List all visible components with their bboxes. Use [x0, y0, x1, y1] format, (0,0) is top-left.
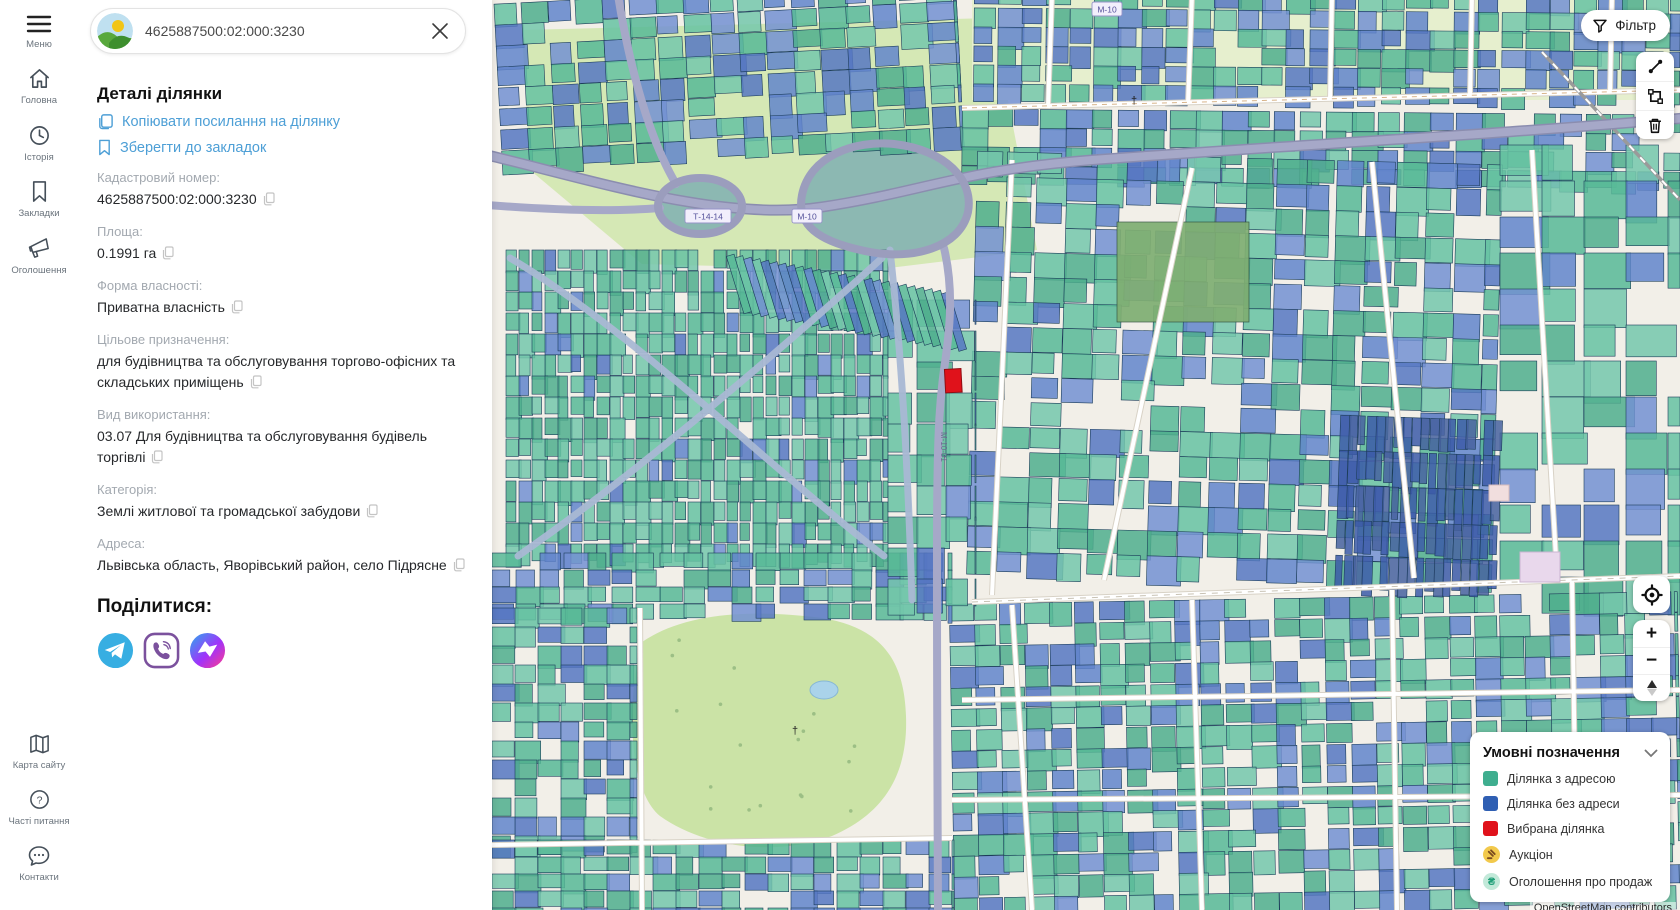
menu-button[interactable]: Меню	[3, 14, 75, 50]
copy-icon[interactable]	[250, 375, 262, 389]
sidebar-item-home[interactable]: Головна	[3, 67, 75, 106]
details-title: Деталі ділянки	[97, 84, 466, 104]
field-label: Площа:	[97, 224, 466, 239]
funnel-icon	[1592, 18, 1608, 34]
field-value: Львівська область, Яворівський район, се…	[97, 555, 466, 576]
blue-swatch	[1483, 796, 1498, 811]
app-root: Меню Головна Історія Закладки Оголо	[0, 0, 1680, 910]
park	[632, 614, 906, 848]
copy-icon[interactable]	[151, 450, 163, 464]
legend-title: Умовні позначення	[1483, 745, 1620, 761]
sidebar-item-bookmarks[interactable]: Закладки	[3, 180, 75, 219]
share-buttons	[97, 632, 466, 669]
svg-text:М-10: М-10	[797, 212, 817, 222]
field-use-type: Вид використання: 03.07 Для будівництва …	[97, 407, 466, 468]
app-logo	[97, 13, 133, 49]
rail-label: Історія	[24, 152, 53, 163]
field-address: Адреса: Львівська область, Яворівський р…	[97, 536, 466, 576]
copy-link-icon	[97, 113, 114, 130]
svg-text:Т-14-14: Т-14-14	[693, 212, 723, 222]
legend-item-sale: ₴ Оголошення про продаж	[1483, 873, 1658, 890]
messenger-icon[interactable]	[189, 632, 226, 669]
field-value: 03.07 Для будівництва та обслуговування …	[97, 426, 466, 468]
measure-area-button[interactable]	[1636, 81, 1674, 110]
zoom-out-button[interactable]: −	[1633, 647, 1670, 674]
map-attribution[interactable]: OpenStreetMap contributors	[1530, 902, 1676, 910]
bookmark-add-icon	[97, 139, 112, 156]
legend-item-selected: Вибрана ділянка	[1483, 821, 1658, 836]
map-toolbar	[1636, 52, 1674, 139]
megaphone-icon	[27, 237, 52, 260]
copy-link-label: Копіювати посилання на ділянку	[122, 114, 340, 130]
building	[1489, 485, 1509, 501]
road-label-m10-01: М-10-01	[939, 432, 948, 462]
question-icon: ?	[28, 788, 51, 811]
rail-label: Головна	[21, 95, 57, 106]
field-label: Кадастровий номер:	[97, 170, 466, 185]
field-label: Адреса:	[97, 536, 466, 551]
legend-label: Ділянка з адресою	[1507, 772, 1615, 786]
svg-text:М-10: М-10	[1097, 5, 1117, 15]
map-area: † † Т-14-14 М-10 М-10 М-10-01 Фільтр	[492, 0, 1680, 910]
bookmark-icon	[29, 180, 50, 203]
filter-label: Фільтр	[1615, 18, 1656, 33]
field-value: Землі житлової та громадської забудови	[97, 501, 466, 522]
svg-text:?: ?	[36, 795, 42, 807]
map-legend: Умовні позначення Ділянка з адресою Діля…	[1470, 732, 1670, 902]
road-shield-m10: М-10	[792, 209, 822, 223]
clear-measurements-button[interactable]	[1636, 110, 1674, 139]
hamburger-icon	[26, 14, 52, 34]
telegram-icon[interactable]	[97, 632, 134, 669]
copy-icon[interactable]	[231, 300, 243, 314]
chevron-down-icon	[1644, 749, 1658, 758]
legend-label: Ділянка без адреси	[1507, 797, 1620, 811]
sidebar-item-contacts[interactable]: Контакти	[3, 845, 75, 883]
sidebar-item-history[interactable]: Історія	[3, 124, 75, 163]
field-value: 4625887500:02:000:3230	[97, 189, 466, 210]
rectangle-select-icon	[1647, 88, 1664, 105]
field-category: Категорія: Землі житлової та громадської…	[97, 482, 466, 522]
parcel-details: Деталі ділянки Копіювати посилання на ді…	[90, 84, 466, 669]
clock-icon	[28, 124, 51, 147]
save-bookmark-action[interactable]: Зберегти до закладок	[97, 139, 466, 156]
search-input[interactable]	[145, 23, 429, 39]
measure-distance-button[interactable]	[1636, 52, 1674, 81]
rail-label: Контакти	[19, 872, 59, 883]
hryvnia-icon: ₴	[1483, 873, 1500, 890]
auction-gavel-icon	[1483, 846, 1500, 863]
compass-button[interactable]	[1633, 674, 1670, 701]
legend-label: Вибрана ділянка	[1507, 822, 1604, 836]
sidebar-item-faq[interactable]: ? Часті питання	[3, 788, 75, 827]
rail-label: Часті питання	[8, 816, 69, 827]
zoom-in-button[interactable]: +	[1633, 620, 1670, 647]
save-bookmark-label: Зберегти до закладок	[120, 140, 266, 156]
legend-header[interactable]: Умовні позначення	[1483, 745, 1658, 761]
pond	[810, 681, 838, 699]
map-icon	[28, 733, 51, 755]
rail-label: Оголошення	[11, 265, 66, 276]
legend-label: Оголошення про продаж	[1509, 875, 1652, 889]
viber-icon[interactable]	[143, 632, 180, 669]
road-shield-t1414: Т-14-14	[685, 209, 731, 223]
share-title: Поділитися:	[97, 596, 466, 618]
geolocate-icon	[1641, 584, 1663, 606]
field-label: Цільове призначення:	[97, 332, 466, 347]
field-label: Вид використання:	[97, 407, 466, 422]
legend-item-with-address: Ділянка з адресою	[1483, 771, 1658, 786]
details-panel: Деталі ділянки Копіювати посилання на ді…	[78, 0, 492, 910]
field-ownership: Форма власності: Приватна власність	[97, 278, 466, 318]
forest	[1117, 222, 1249, 322]
rail-label: Карта сайту	[13, 760, 66, 771]
close-icon[interactable]	[429, 20, 451, 42]
filter-button[interactable]: Фільтр	[1581, 10, 1670, 41]
church-cross: †	[1131, 95, 1137, 107]
legend-label: Аукціон	[1509, 848, 1553, 862]
green-swatch	[1483, 771, 1498, 786]
copy-icon[interactable]	[366, 504, 378, 518]
field-label: Категорія:	[97, 482, 466, 497]
sidebar-item-announcements[interactable]: Оголошення	[3, 237, 75, 276]
sidebar-item-sitemap[interactable]: Карта сайту	[3, 733, 75, 771]
copy-icon[interactable]	[453, 558, 465, 572]
copy-icon[interactable]	[263, 192, 275, 206]
search-box[interactable]	[90, 8, 466, 54]
field-label: Форма власності:	[97, 278, 466, 293]
field-value: для будівництва та обслуговування торгов…	[97, 351, 466, 393]
rail-label: Меню	[26, 39, 52, 50]
legend-item-no-address: Ділянка без адреси	[1483, 796, 1658, 811]
field-value: Приватна власність	[97, 297, 466, 318]
field-value: 0.1991 га	[97, 243, 466, 264]
building	[1520, 552, 1560, 582]
copy-link-action[interactable]: Копіювати посилання на ділянку	[97, 113, 466, 130]
ruler-icon	[1647, 58, 1664, 75]
icon-rail: Меню Головна Історія Закладки Оголо	[0, 0, 78, 910]
red-swatch	[1483, 821, 1498, 836]
selected-parcel[interactable]	[944, 369, 962, 393]
zoom-controls: + −	[1633, 620, 1670, 701]
rail-label: Закладки	[18, 208, 59, 219]
home-icon	[28, 67, 51, 90]
field-purpose: Цільове призначення: для будівництва та …	[97, 332, 466, 393]
road-shield-m10-top: М-10	[1092, 2, 1122, 16]
church-cross: †	[792, 725, 798, 737]
field-area: Площа: 0.1991 га	[97, 224, 466, 264]
copy-icon[interactable]	[162, 246, 174, 260]
locate-button[interactable]	[1633, 576, 1670, 613]
legend-item-auction: Аукціон	[1483, 846, 1658, 863]
chat-icon	[27, 845, 51, 867]
field-cadastral-number: Кадастровий номер: 4625887500:02:000:323…	[97, 170, 466, 210]
compass-icon	[1645, 679, 1659, 697]
trash-icon	[1647, 117, 1663, 134]
